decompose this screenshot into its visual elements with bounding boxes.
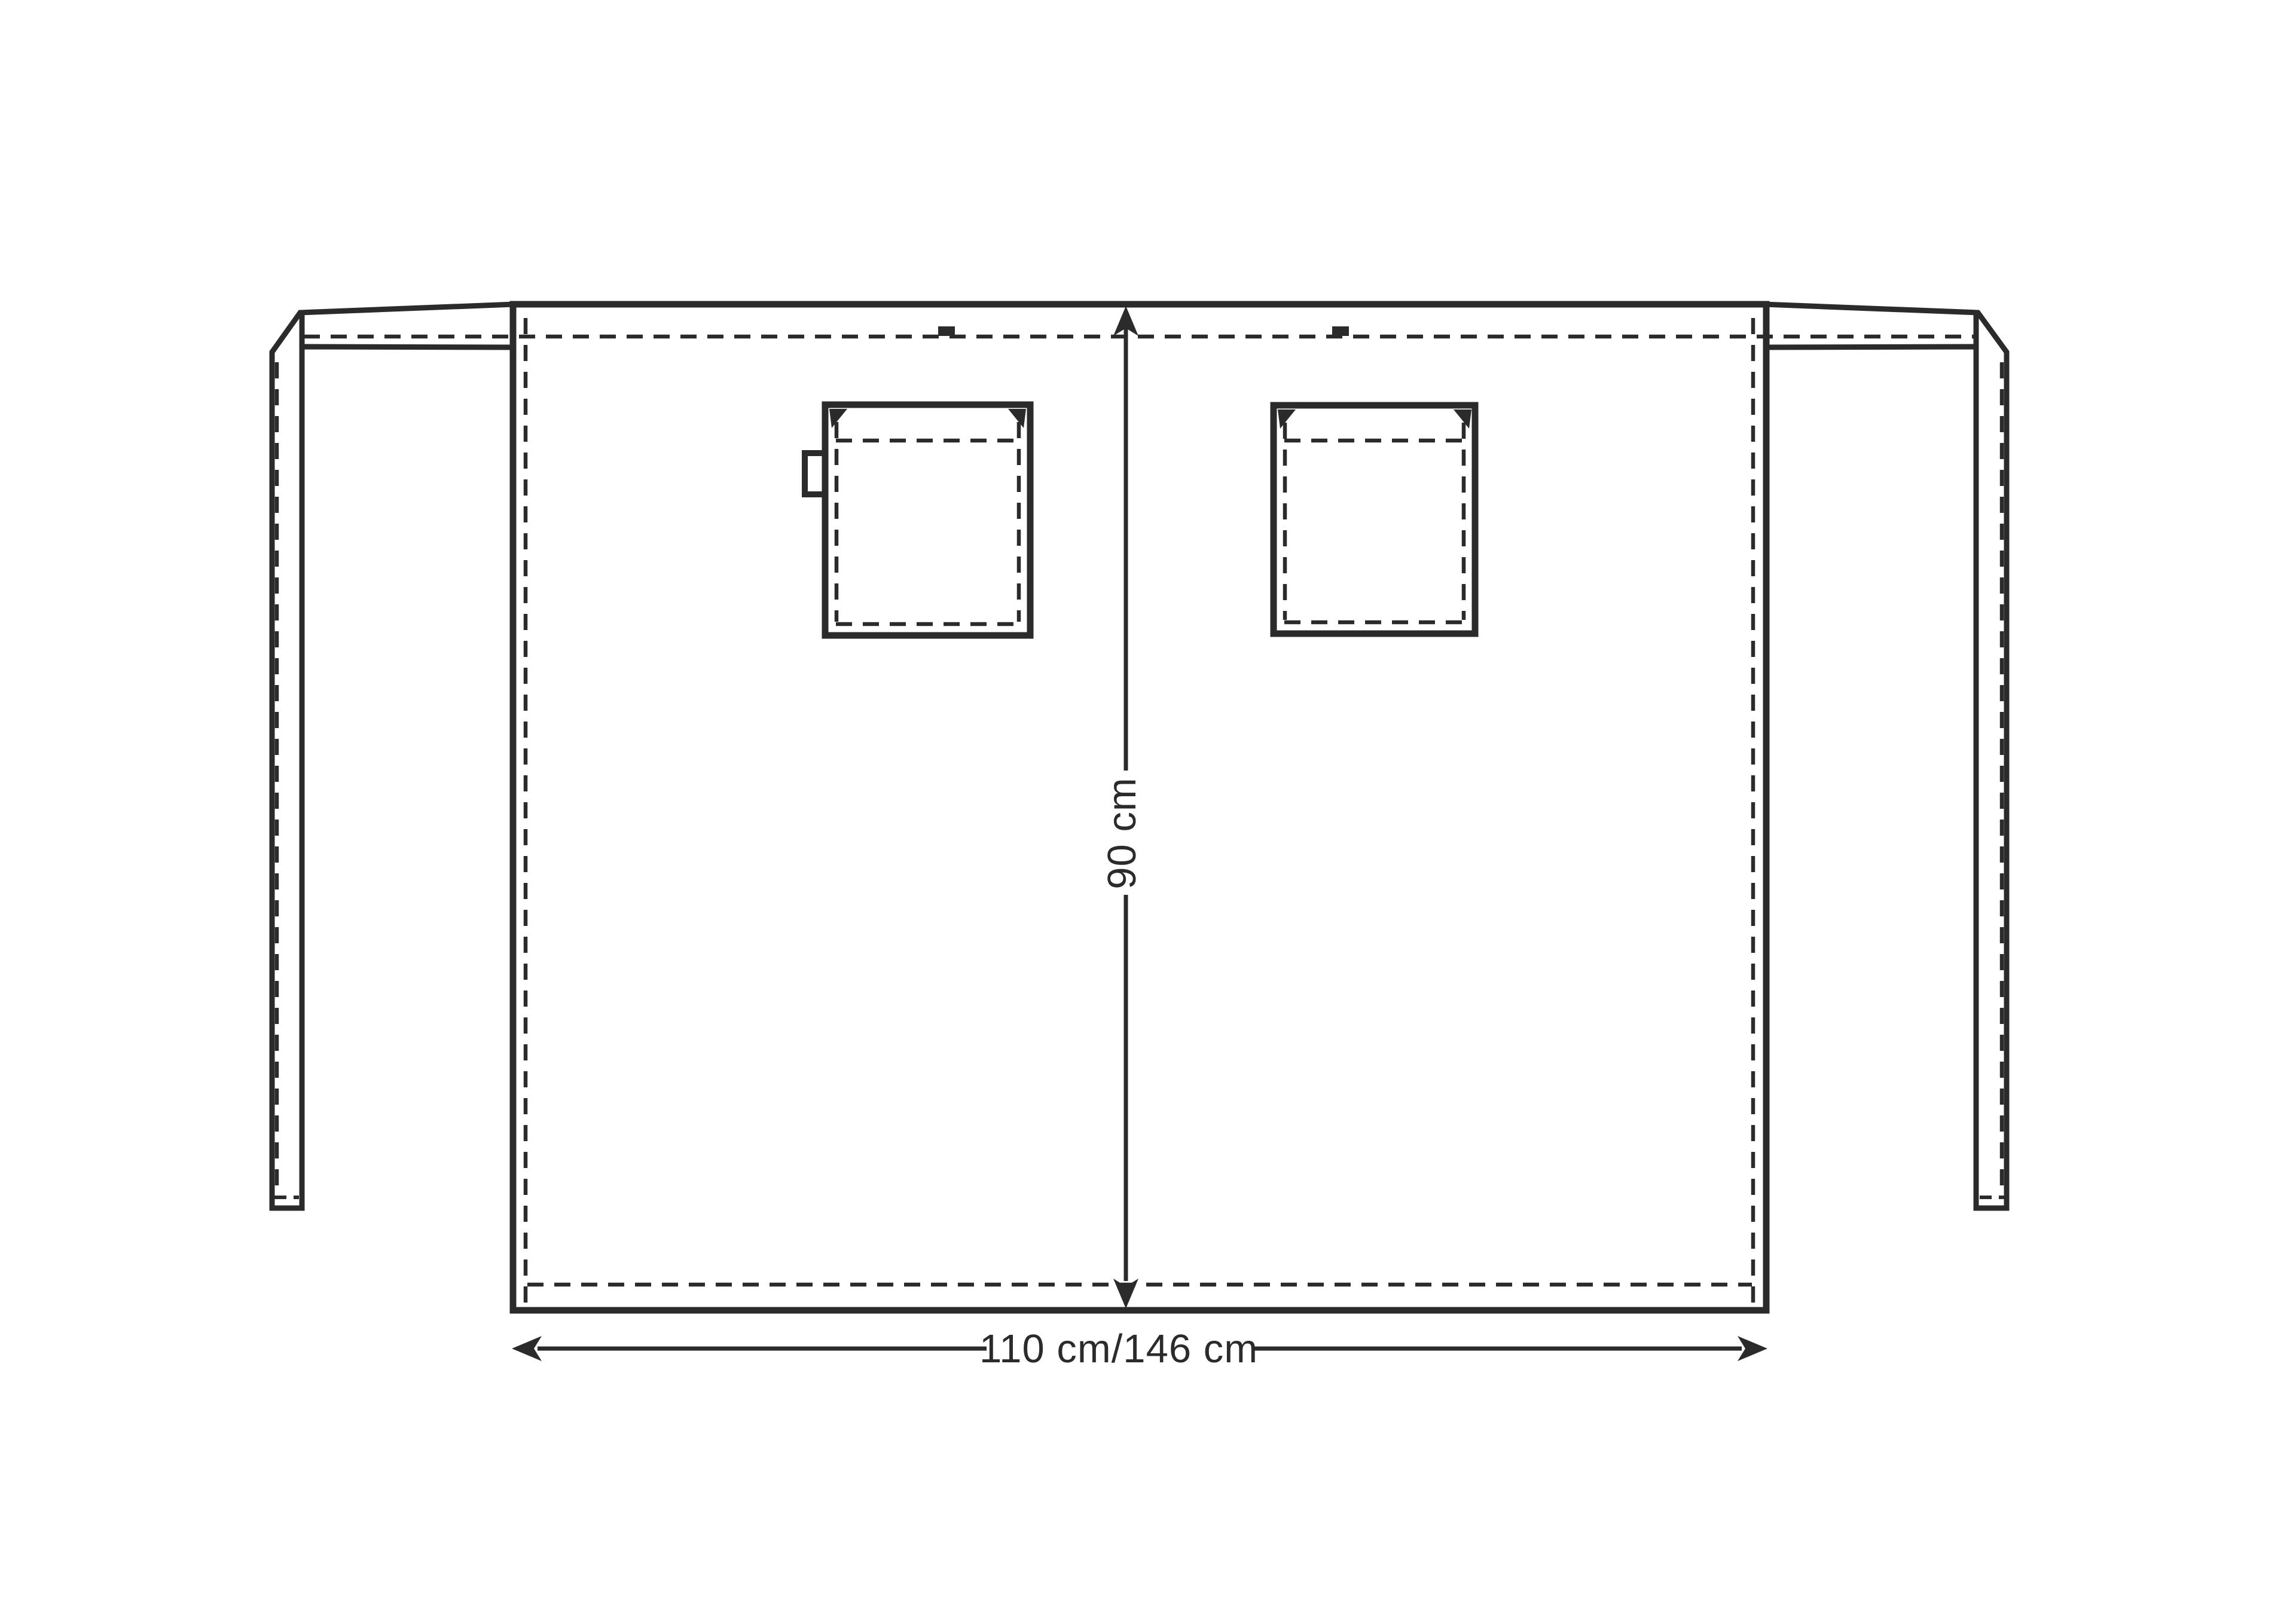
right-tie-outline	[1764, 304, 2007, 1208]
arrow-right-icon	[1738, 1336, 1767, 1361]
apron-technical-drawing: 90 cm 110 cm/146 cm	[0, 0, 2296, 1605]
left-pocket	[805, 405, 1030, 635]
hanger-tab-left	[938, 326, 955, 336]
right-waist-tie	[1764, 304, 2007, 1208]
left-waist-tie	[272, 304, 514, 1208]
apron-diagram-canvas: 90 cm 110 cm/146 cm	[0, 0, 2296, 1605]
arrow-left-icon	[512, 1336, 542, 1361]
width-dimension: 110 cm/146 cm	[512, 1326, 1767, 1371]
hanger-tab-right	[1332, 326, 1349, 336]
width-dimension-label: 110 cm/146 cm	[979, 1326, 1258, 1371]
right-pocket	[1274, 405, 1475, 634]
left-tie-outline	[272, 304, 514, 1208]
height-dimension-label: 90 cm	[1100, 777, 1144, 889]
